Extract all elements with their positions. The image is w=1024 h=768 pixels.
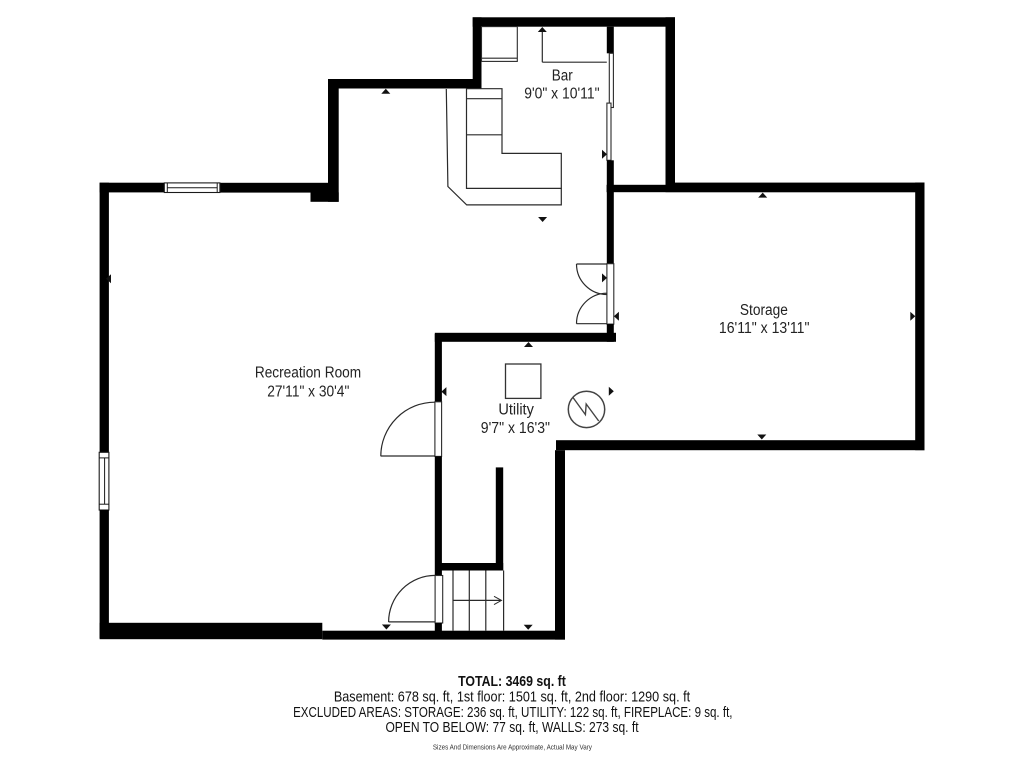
svg-text:9'0" x 10'11": 9'0" x 10'11" [524, 86, 599, 103]
svg-text:27'11" x 30'4": 27'11" x 30'4" [267, 383, 349, 400]
svg-text:Utility: Utility [498, 402, 534, 419]
svg-text:Bar: Bar [552, 67, 573, 84]
svg-text:EXCLUDED AREAS: STORAGE: 236 s: EXCLUDED AREAS: STORAGE: 236 sq. ft, UTI… [293, 705, 732, 721]
svg-text:9'7" x 16'3": 9'7" x 16'3" [481, 420, 550, 437]
svg-text:Basement: 678 sq. ft, 1st floo: Basement: 678 sq. ft, 1st floor: 1501 sq… [334, 689, 690, 705]
svg-text:16'11" x 13'11": 16'11" x 13'11" [719, 320, 810, 337]
svg-text:Storage: Storage [740, 302, 788, 319]
svg-text:OPEN TO BELOW: 77 sq. ft, WALL: OPEN TO BELOW: 77 sq. ft, WALLS: 273 sq.… [385, 720, 638, 736]
svg-text:TOTAL: 3469 sq. ft: TOTAL: 3469 sq. ft [458, 674, 566, 690]
svg-text:Sizes And Dimensions Are Appro: Sizes And Dimensions Are Approximate, Ac… [433, 744, 593, 751]
svg-text:Recreation Room: Recreation Room [255, 365, 361, 382]
